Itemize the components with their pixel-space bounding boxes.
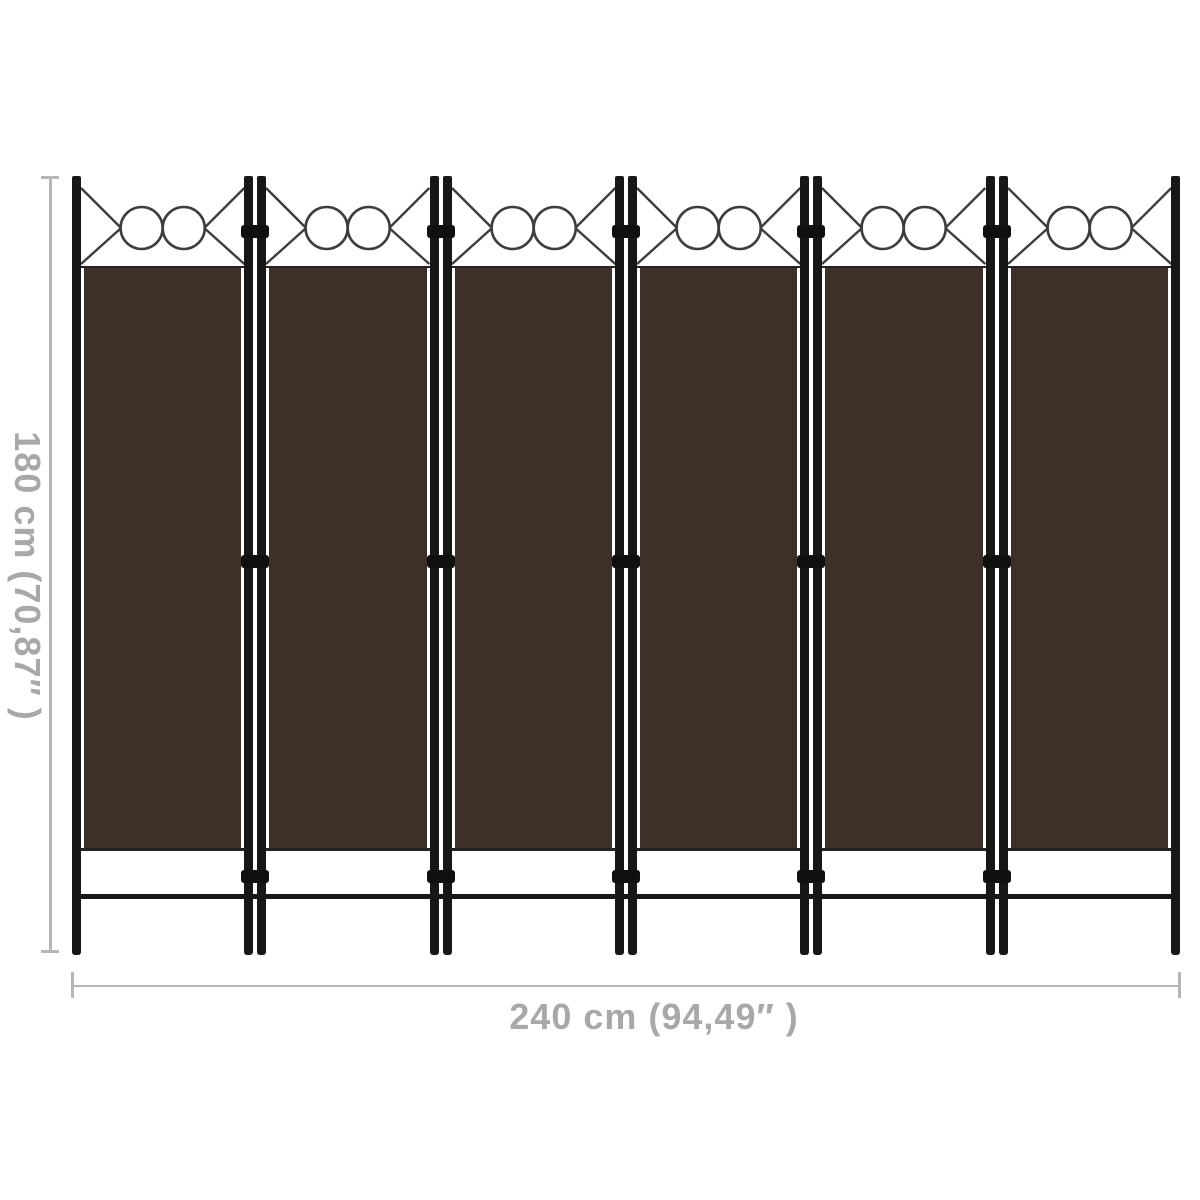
ornament-top <box>81 176 244 266</box>
ornament-top <box>822 176 985 266</box>
fabric-screen <box>1011 268 1168 848</box>
height-dimension-line <box>49 177 52 952</box>
ornament-svg <box>1008 176 1171 266</box>
width-dimension-right-cap <box>1178 972 1181 998</box>
hinge-bracket <box>612 555 640 568</box>
room-divider <box>72 176 1180 955</box>
ornament-circles <box>862 207 946 249</box>
ornament-circles <box>677 207 761 249</box>
hinge-bracket <box>797 225 825 238</box>
ornament-svg <box>452 176 615 266</box>
hinge-bracket <box>427 870 455 883</box>
width-dimension-line <box>72 985 1180 988</box>
divider-panel <box>72 176 253 955</box>
hinge-bracket <box>427 555 455 568</box>
fabric-bottom-rail <box>1008 848 1171 851</box>
ornament-top <box>452 176 615 266</box>
width-dimension-label: 240 cm (94,49″ ) <box>509 996 798 1038</box>
divider-panel <box>628 176 809 955</box>
divider-panel <box>257 176 438 955</box>
fabric-bottom-rail <box>822 848 985 851</box>
fabric-bottom-rail <box>81 848 244 851</box>
fabric-bottom-rail <box>637 848 800 851</box>
hinge-bracket <box>241 555 269 568</box>
height-dimension-bottom-cap <box>41 950 59 953</box>
frame-post-right <box>1171 176 1180 955</box>
ornament-svg <box>266 176 429 266</box>
hinge-bracket <box>983 870 1011 883</box>
ornament-top <box>1008 176 1171 266</box>
divider-panel <box>813 176 994 955</box>
ornament-top <box>266 176 429 266</box>
width-dimension-left-cap <box>71 972 74 998</box>
hinge-bracket <box>241 870 269 883</box>
ornament-svg <box>81 176 244 266</box>
fabric-screen <box>825 268 982 848</box>
fabric-bottom-rail <box>452 848 615 851</box>
ornament-svg <box>637 176 800 266</box>
ornament-top <box>637 176 800 266</box>
ornament-circles <box>491 207 575 249</box>
ornament-circles <box>1047 207 1131 249</box>
divider-panel <box>443 176 624 955</box>
fabric-bottom-rail <box>266 848 429 851</box>
hinge-bracket <box>983 555 1011 568</box>
fabric-screen <box>84 268 241 848</box>
hinge-bracket <box>797 870 825 883</box>
fabric-screen <box>455 268 612 848</box>
height-dimension-label: 180 cm (70,87″ ) <box>6 431 48 720</box>
divider-panel <box>999 176 1180 955</box>
ornament-circles <box>121 207 205 249</box>
hinge-bracket <box>983 225 1011 238</box>
fabric-screen <box>269 268 426 848</box>
hinge-bracket <box>612 225 640 238</box>
frame-post-left <box>72 176 81 955</box>
hinge-bracket <box>427 225 455 238</box>
ornament-svg <box>822 176 985 266</box>
ornament-circles <box>306 207 390 249</box>
hinge-bracket <box>797 555 825 568</box>
fabric-screen <box>640 268 797 848</box>
hinge-bracket <box>612 870 640 883</box>
bottom-crossbar <box>74 894 1178 899</box>
height-dimension-top-cap <box>41 176 59 179</box>
hinge-bracket <box>241 225 269 238</box>
product-dimension-image: 180 cm (70,87″ ) 240 cm (94,49″ ) <box>0 0 1200 1200</box>
